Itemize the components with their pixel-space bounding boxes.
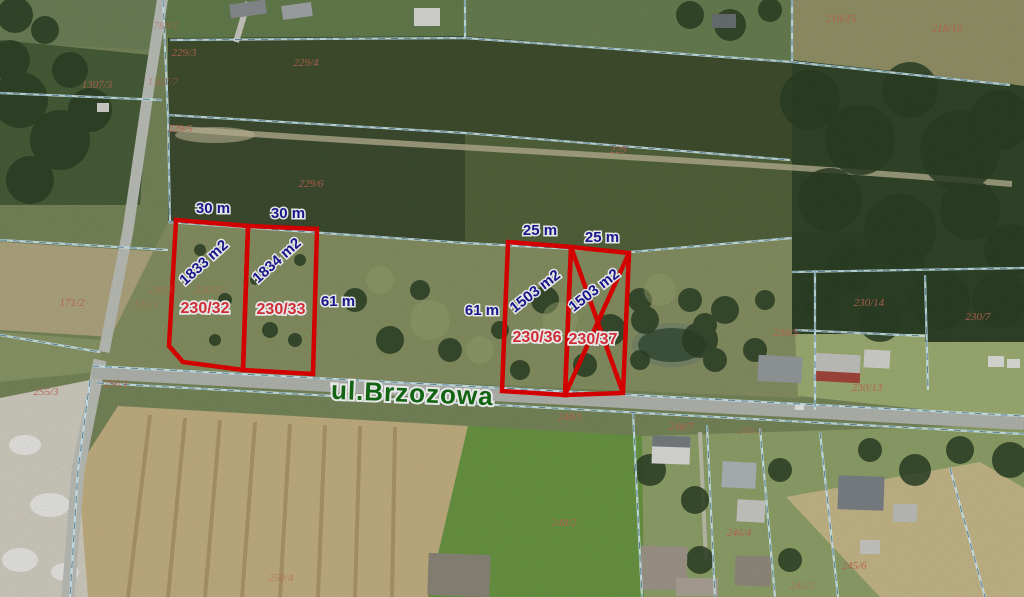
photo-grain [0,0,1024,597]
aerial-map: 788/1 229/3 1307/3 1307/7 229/4 229/5 22… [0,0,1024,597]
